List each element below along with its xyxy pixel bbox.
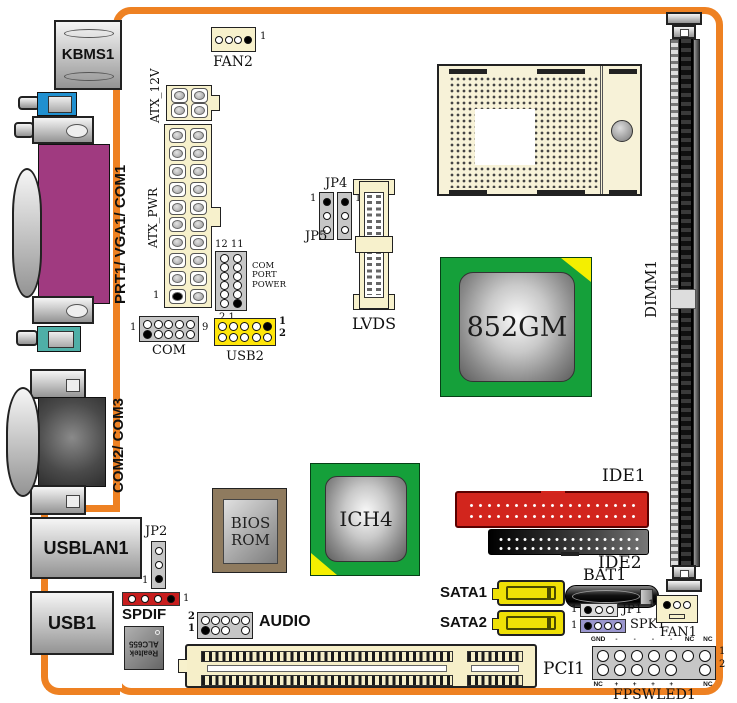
jp1-label: JP1	[622, 602, 643, 616]
pin	[218, 333, 227, 342]
ide2-connector	[488, 529, 649, 555]
spdif-header	[122, 592, 180, 606]
pin	[190, 182, 207, 197]
bat1-label: BAT1	[583, 565, 626, 584]
compwr-top-pins-label: 12 11	[215, 239, 244, 250]
cpu-bar-4	[449, 190, 487, 195]
screw-connector-bottom	[32, 296, 94, 324]
prt-vga-com-label: PRT1/ VGA1/ COM1	[112, 143, 129, 325]
pin	[341, 198, 349, 206]
spk1-pin1-label: 1	[571, 620, 577, 631]
fpswled1-top-label: -	[662, 636, 680, 643]
sata1-l-hook	[547, 588, 551, 600]
fan2-header	[211, 27, 256, 52]
usb2-header	[214, 318, 276, 346]
pin	[648, 664, 660, 676]
pin	[683, 601, 691, 609]
pin	[595, 606, 603, 614]
dimm1-latch-bottom	[666, 579, 702, 592]
com-pin9-label: 9	[202, 322, 208, 333]
kbms1-label: KBMS1	[56, 46, 120, 63]
cpu-bar-1	[449, 69, 487, 74]
pin	[155, 561, 163, 569]
compwr-label: COM PORT POWER	[252, 262, 286, 290]
cpu-lever-divider	[600, 66, 603, 194]
pin	[673, 601, 681, 609]
atxpwr-pin1-label: 1	[153, 290, 159, 301]
atx12v-label: ATX_12V	[148, 66, 162, 126]
port-stub-3	[16, 330, 38, 346]
pci1-ticks-top-left	[201, 651, 453, 662]
kbms1-port: KBMS1	[54, 20, 122, 90]
cpu-bar-6	[609, 190, 637, 195]
northbridge-852gm: 852GM	[440, 257, 592, 397]
audio-pin2-label: 2	[188, 611, 195, 622]
pin	[190, 128, 207, 143]
fan1-pin1-label: 1	[648, 599, 654, 610]
pin	[584, 622, 592, 630]
pin	[252, 333, 261, 342]
bios-rom-chip: BIOS ROM	[212, 488, 287, 573]
fpswled1-top-labels: GND - - - - NC NC	[589, 636, 717, 643]
pin	[240, 333, 249, 342]
com23-bracket-bottom-notch	[66, 495, 80, 508]
motherboard-diagram: KBMS1 PRT1/ VGA1/ COM1 COM2/ COM3 1 FAN2…	[0, 0, 737, 703]
sata2-label: SATA2	[440, 614, 487, 631]
pin	[211, 626, 220, 635]
pin	[220, 299, 229, 308]
fpswled1-label: FPSWLED1	[613, 687, 696, 703]
cpu-cam-screw	[611, 120, 633, 142]
sata2-l-hook	[547, 618, 551, 630]
pin	[699, 650, 711, 662]
pin	[341, 226, 349, 234]
pin	[631, 650, 643, 662]
atx12v-connector	[166, 85, 212, 121]
pin	[164, 320, 173, 329]
sata1-connector	[497, 580, 565, 606]
sata2-tab	[492, 618, 499, 630]
dimm1-latch-top	[666, 12, 702, 25]
pin	[233, 254, 242, 263]
pin	[225, 36, 233, 44]
usb1-port: USB1	[30, 591, 114, 655]
pin	[186, 320, 195, 329]
dimm1-slot	[664, 12, 706, 592]
pin	[143, 320, 152, 329]
usblan1-label: USBLAN1	[43, 538, 128, 559]
pin	[169, 271, 186, 286]
pci1-channel-right	[471, 665, 519, 672]
pin	[234, 36, 242, 44]
pin	[218, 322, 227, 331]
fpswled1-top-label: NC	[699, 636, 717, 643]
atxpwr-connector	[164, 124, 212, 308]
fan2-pin1-label: 1	[260, 31, 266, 42]
pci1-channel-left	[207, 665, 447, 672]
pin	[648, 650, 660, 662]
fan1-header	[656, 595, 698, 623]
pin	[167, 595, 175, 603]
audio-codec-pin1-dot	[155, 630, 160, 635]
pin	[229, 322, 238, 331]
pin	[169, 289, 186, 304]
jp5-pin1-label: 1	[310, 193, 316, 204]
spk1-header	[580, 619, 626, 633]
ide1-label: IDE1	[602, 466, 646, 486]
com-pin1-label: 1	[130, 322, 136, 333]
pin	[263, 333, 272, 342]
pin	[220, 290, 229, 299]
pci1-ticks-top-right	[467, 651, 523, 662]
audio-codec-label: Realtek ALC655	[129, 639, 159, 657]
blue-connector	[37, 92, 77, 116]
blue-connector-plug	[48, 96, 72, 113]
dimm1-latch-bottom-2	[672, 565, 696, 579]
pin	[190, 217, 207, 232]
pin	[190, 235, 207, 250]
com23-label: COM2/ COM3	[110, 383, 127, 507]
southbridge-label: ICH4	[339, 507, 392, 531]
pin	[171, 103, 188, 118]
northbridge-die: 852GM	[459, 272, 575, 382]
pin	[190, 289, 207, 304]
pin	[233, 263, 242, 272]
southbridge-die: ICH4	[325, 476, 407, 562]
pin	[233, 281, 242, 290]
com23-bracket-top-notch	[66, 379, 80, 392]
lvds-middle-band	[355, 236, 393, 253]
jp2-label: JP2	[145, 524, 167, 539]
pin	[191, 88, 208, 103]
pin	[164, 330, 173, 339]
fpswled1-pin1-label: 1	[719, 646, 725, 657]
pin	[190, 146, 207, 161]
jp2-jumper	[151, 541, 166, 589]
pin	[663, 601, 671, 609]
pin	[171, 88, 188, 103]
pin	[220, 281, 229, 290]
audio-label: AUDIO	[259, 613, 311, 631]
pin	[614, 650, 626, 662]
pin	[604, 622, 612, 630]
pin	[606, 606, 614, 614]
pin	[175, 330, 184, 339]
audio-codec-chip: Realtek ALC655	[124, 626, 164, 670]
prt-vga-com-port	[38, 144, 110, 304]
pin	[631, 664, 643, 676]
jp2-pin1-label: 1	[142, 575, 148, 586]
pin	[190, 164, 207, 179]
pin	[220, 263, 229, 272]
pin	[233, 272, 242, 281]
sata1-label: SATA1	[440, 584, 487, 601]
pin	[597, 664, 609, 676]
pin	[143, 330, 152, 339]
pin	[169, 182, 186, 197]
pin	[244, 36, 252, 44]
pin	[240, 322, 249, 331]
ide1-connector	[455, 491, 649, 528]
fpswled1-pin2-label: 2	[719, 659, 725, 670]
pin	[233, 299, 242, 308]
com-label: COM	[139, 343, 199, 358]
pin	[175, 320, 184, 329]
pin	[229, 333, 238, 342]
pin	[169, 235, 186, 250]
atxpwr-label: ATX_PWR	[146, 180, 160, 256]
fpswled1-top-label: -	[626, 636, 644, 643]
pin	[221, 626, 230, 635]
pin	[220, 254, 229, 263]
pin	[190, 253, 207, 268]
pci1-ticks-bottom-left	[201, 675, 453, 686]
sata2-connector	[497, 610, 565, 636]
pin	[665, 664, 677, 676]
pin	[584, 606, 592, 614]
pin	[190, 200, 207, 215]
dimm1-body	[670, 39, 700, 567]
dimm1-label: DIMM1	[642, 246, 660, 332]
pin	[155, 575, 163, 583]
com-header	[139, 316, 199, 342]
ide1-pin-field	[467, 500, 641, 522]
com23-bracket-top	[30, 369, 86, 399]
pin	[699, 664, 711, 676]
pin	[614, 664, 626, 676]
usb2-pin1-label: 1	[279, 316, 286, 327]
compwr-header	[215, 251, 247, 311]
jp4-jumper	[337, 192, 352, 240]
pin	[190, 271, 207, 286]
fpswled1-top-label: GND	[589, 636, 607, 643]
atxpwr-tab	[211, 207, 221, 227]
com23-body	[38, 397, 106, 487]
ide2-pin-field	[497, 535, 642, 551]
pin	[154, 320, 163, 329]
ide2-key-notch	[561, 552, 579, 556]
usb1-label: USB1	[48, 613, 96, 634]
bios-rom-label: BIOS ROM	[231, 515, 271, 548]
ide1-key-notch	[541, 491, 565, 495]
cpu-center-cavity	[475, 109, 535, 165]
pci1-left-key	[178, 659, 187, 673]
fan1-pins	[660, 598, 694, 612]
audio-header	[197, 612, 253, 639]
bios-rom-body: BIOS ROM	[223, 499, 278, 564]
pin	[323, 198, 331, 206]
pin	[201, 626, 210, 635]
fpswled1-bottom-label: NC	[589, 681, 607, 688]
pin	[682, 650, 694, 662]
screw-connector-top	[32, 116, 94, 144]
usblan1-port: USBLAN1	[30, 517, 142, 579]
pin	[252, 322, 261, 331]
pci1-ticks-bottom-right	[467, 675, 523, 686]
pin	[614, 622, 622, 630]
pin	[169, 200, 186, 215]
cpu-bar-2	[537, 69, 585, 74]
screw-bottom-ellipse	[66, 304, 88, 318]
pin	[215, 36, 223, 44]
lvds-label: LVDS	[352, 314, 396, 333]
pin	[220, 272, 229, 281]
kbms1-oval-top	[64, 29, 114, 38]
pin	[241, 616, 250, 625]
dsub-shell	[12, 168, 42, 298]
pin	[128, 595, 136, 603]
pin	[231, 616, 240, 625]
cpu-bar-3	[609, 69, 637, 74]
screw-top-ellipse	[66, 124, 88, 138]
fpswled1-top-label: -	[607, 636, 625, 643]
spdif-label: SPDIF	[122, 606, 166, 623]
pci1-slot	[185, 644, 537, 688]
pin	[323, 212, 331, 220]
fan2-label: FAN2	[205, 54, 261, 70]
dimm1-key-notch	[670, 289, 696, 309]
port-stub-2	[14, 122, 34, 138]
southbridge-ich4: ICH4	[310, 463, 420, 576]
jp5-label: JP5	[305, 229, 327, 244]
pin	[211, 616, 220, 625]
teal-connector-plug	[48, 331, 74, 348]
pci1-label: PCI1	[543, 659, 585, 679]
pin	[169, 128, 186, 143]
pin	[169, 253, 186, 268]
usb2-pin2-label: 2	[279, 328, 286, 339]
pin	[141, 595, 149, 603]
pin	[169, 146, 186, 161]
northbridge-label: 852GM	[467, 312, 568, 343]
atx12v-tab	[211, 95, 220, 111]
fpswled1-top-label: -	[644, 636, 662, 643]
pin	[263, 322, 272, 331]
cpu-bar-5	[537, 190, 585, 195]
fpswled1-header	[592, 646, 716, 680]
pin	[221, 616, 230, 625]
pin	[169, 164, 186, 179]
jp1-header	[580, 603, 618, 617]
pin	[241, 626, 250, 635]
jp1-pin1-label: 1	[571, 604, 577, 615]
pin	[154, 330, 163, 339]
fan1-slot	[669, 614, 685, 619]
com23-shell	[6, 387, 40, 497]
fpswled1-bottom-label: NC	[699, 681, 717, 688]
pin	[594, 622, 602, 630]
jp4-label: JP4	[325, 176, 347, 191]
pin	[191, 103, 208, 118]
pin	[341, 212, 349, 220]
pin	[155, 547, 163, 555]
com23-bracket-bottom	[30, 485, 86, 515]
spdif-pin1-label: 1	[183, 593, 189, 604]
pin	[201, 616, 210, 625]
pin	[154, 595, 162, 603]
pin	[597, 650, 609, 662]
pin	[665, 650, 677, 662]
audio-pin1-label: 1	[188, 623, 195, 634]
dimm1-latch-top-2	[672, 25, 696, 39]
pin	[233, 290, 242, 299]
cpu-socket	[437, 64, 642, 196]
fpswled1-top-label: NC	[680, 636, 698, 643]
kbms1-oval-bottom	[64, 72, 114, 81]
pin	[186, 330, 195, 339]
pin	[169, 217, 186, 232]
usb2-label: USB2	[214, 349, 276, 364]
sata1-tab	[492, 588, 499, 600]
teal-connector	[37, 326, 81, 352]
